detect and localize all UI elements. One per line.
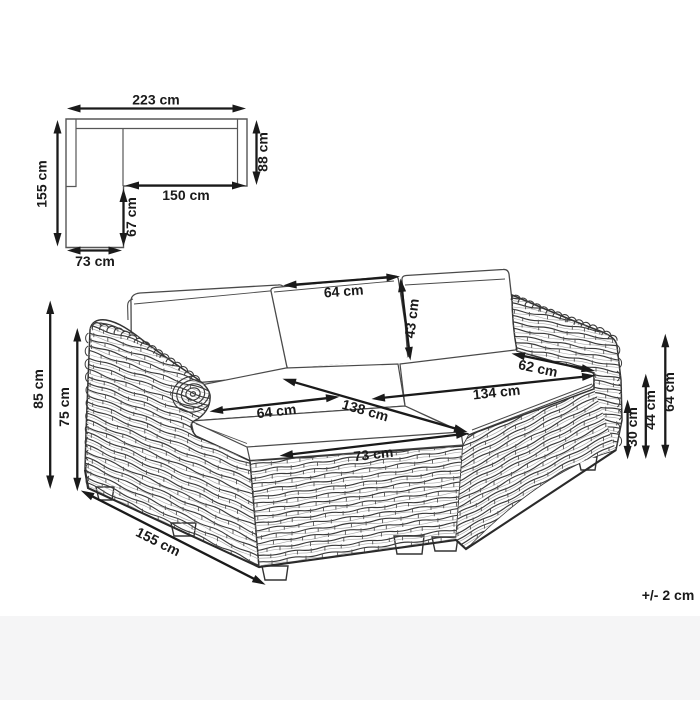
svg-text:155 cm: 155 cm [34, 160, 50, 207]
svg-text:88 cm: 88 cm [255, 132, 271, 172]
svg-text:85 cm: 85 cm [30, 369, 46, 409]
svg-text:73 cm: 73 cm [75, 253, 115, 269]
svg-text:67 cm: 67 cm [123, 197, 139, 237]
svg-text:75 cm: 75 cm [56, 387, 72, 427]
svg-text:30 cm: 30 cm [624, 407, 640, 447]
svg-text:44 cm: 44 cm [642, 390, 658, 430]
svg-text:64 cm: 64 cm [323, 281, 364, 300]
svg-text:150 cm: 150 cm [162, 187, 209, 203]
svg-text:+/- 2 cm: +/- 2 cm [642, 587, 695, 603]
svg-text:64 cm: 64 cm [661, 372, 677, 412]
svg-text:223 cm: 223 cm [132, 92, 179, 108]
